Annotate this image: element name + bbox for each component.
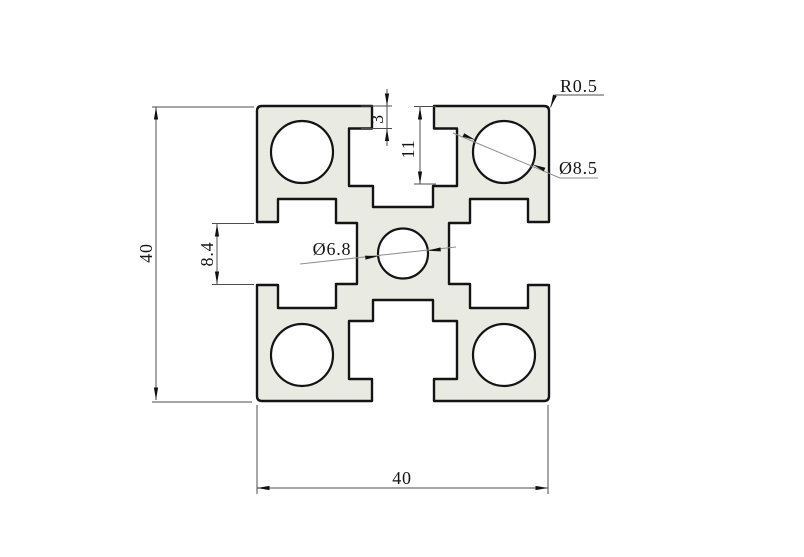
- corner-radius-label: R0.5: [560, 76, 598, 96]
- arrowhead-up: [215, 224, 219, 237]
- arrowhead-down: [215, 272, 219, 285]
- corner-hole-label: Ø8.5: [559, 158, 598, 178]
- corner-hole-bottom-left: [271, 324, 333, 386]
- arrowhead-right: [536, 486, 549, 490]
- dim-slot-opening-label: 8.4: [197, 242, 217, 267]
- arrowhead-down: [154, 388, 158, 401]
- arrowhead-up: [418, 107, 422, 120]
- corner-hole-top-right: [473, 121, 535, 183]
- leader-corner-radius: R0.5: [551, 76, 605, 108]
- center-hole: [378, 229, 428, 279]
- dim-width: 40: [257, 405, 548, 494]
- dim-cavity-depth-label: 11: [398, 140, 418, 159]
- corner-hole-bottom-right: [473, 324, 535, 386]
- arrowhead-up: [154, 107, 158, 120]
- dim-width-label: 40: [392, 468, 412, 488]
- arrowhead-down: [385, 94, 389, 107]
- dim-height-label: 40: [136, 243, 156, 263]
- arrowhead-left: [257, 486, 270, 490]
- corner-hole-top-left: [271, 121, 333, 183]
- dim-mouth-depth-label: 3: [367, 114, 387, 124]
- arrowhead: [551, 95, 557, 108]
- arrowhead-up: [385, 129, 389, 142]
- dim-slot-opening: 8.4: [197, 224, 254, 285]
- arrowhead-down: [418, 172, 422, 185]
- dim-height: 40: [136, 107, 254, 402]
- technical-drawing: 40 40 8.4 3 11 R0.5: [0, 0, 804, 557]
- drawing-canvas: 40 40 8.4 3 11 R0.5: [0, 0, 804, 557]
- center-hole-label: Ø6.8: [313, 239, 352, 259]
- leader-line: [551, 95, 605, 108]
- dim-cavity-depth: 11: [398, 107, 436, 185]
